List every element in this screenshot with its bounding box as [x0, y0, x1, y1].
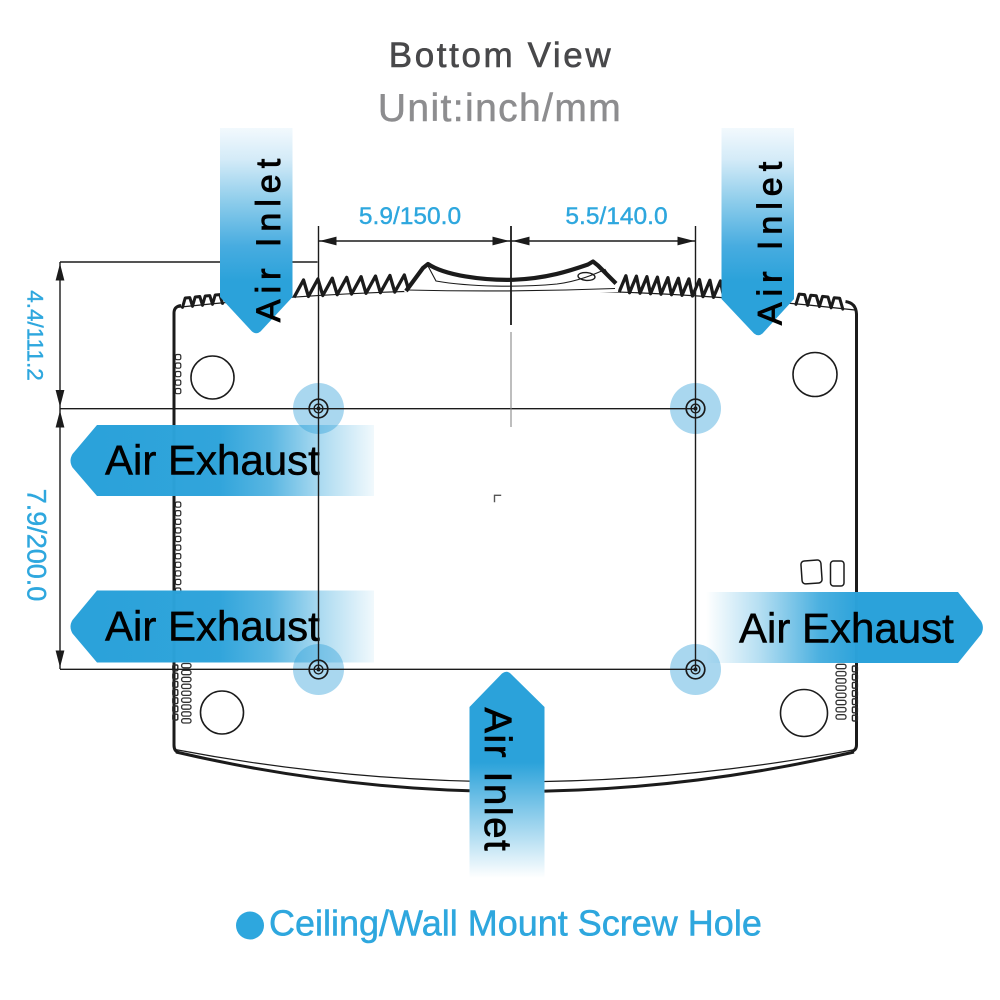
- svg-text:5.5/140.0: 5.5/140.0: [565, 203, 667, 230]
- svg-text:Air Inlet: Air Inlet: [476, 707, 518, 852]
- svg-text:Air Inlet: Air Inlet: [752, 156, 790, 325]
- svg-text:4.4/111.2: 4.4/111.2: [23, 290, 48, 381]
- svg-text:Air Exhaust: Air Exhaust: [105, 437, 320, 484]
- svg-text:Air Inlet: Air Inlet: [250, 153, 288, 322]
- svg-text:7.9/200.0: 7.9/200.0: [22, 489, 52, 602]
- svg-text:Air Exhaust: Air Exhaust: [105, 603, 320, 650]
- svg-text:Ceiling/Wall Mount Screw Hole: Ceiling/Wall Mount Screw Hole: [269, 903, 762, 944]
- svg-text:Unit:inch/mm: Unit:inch/mm: [378, 87, 622, 130]
- svg-text:5.9/150.0: 5.9/150.0: [359, 203, 461, 230]
- svg-text:Air Exhaust: Air Exhaust: [739, 605, 954, 652]
- svg-text:Bottom View: Bottom View: [389, 36, 613, 75]
